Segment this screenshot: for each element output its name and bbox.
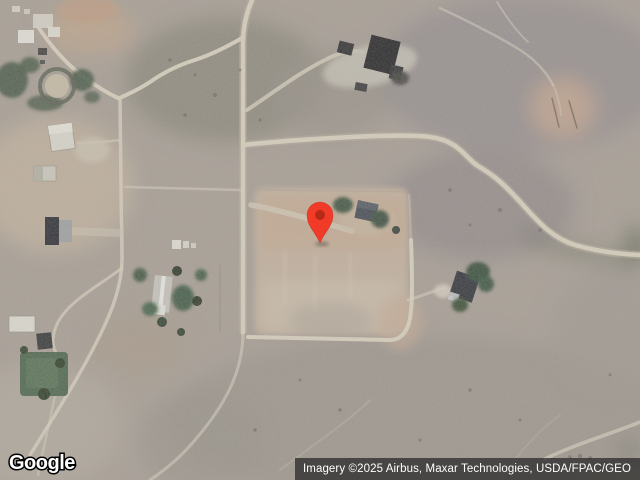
pin-shadow [315, 242, 329, 247]
satellite-imagery [0, 0, 640, 480]
attribution-text: Imagery ©2025 Airbus, Maxar Technologies… [303, 463, 631, 475]
attribution-bar: Imagery ©2025 Airbus, Maxar Technologies… [295, 458, 640, 480]
pin-core [315, 210, 325, 220]
google-logo[interactable]: Google [6, 447, 106, 477]
map-canvas[interactable]: Google Imagery ©2025 Airbus, Maxar Techn… [0, 0, 640, 480]
google-logo-text: Google [9, 452, 75, 474]
